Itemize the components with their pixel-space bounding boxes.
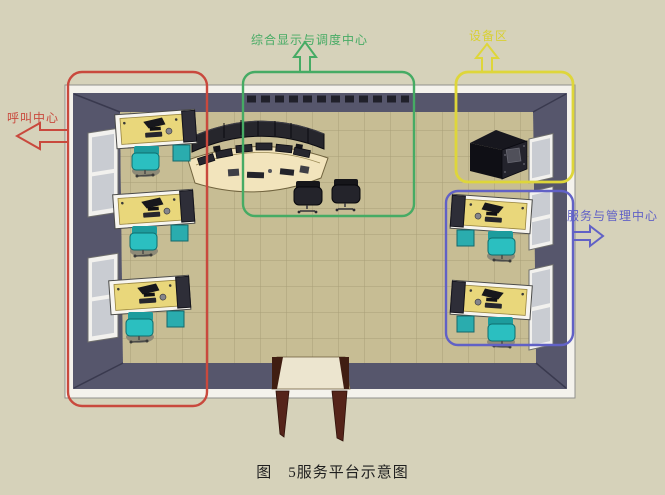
zone-label-service-management: 服务与管理中心 xyxy=(567,210,658,223)
arrow-right-icon xyxy=(573,226,603,246)
figure-canvas: 呼叫中心 综合显示与调度中心 设备区 服务与管理中心 图 5服务平台示意图 xyxy=(0,0,665,495)
zone-label-display-dispatch: 综合显示与调度中心 xyxy=(251,34,368,47)
call-center-workstations xyxy=(109,109,197,343)
arrow-left-icon xyxy=(17,123,68,149)
zone-label-call-center: 呼叫中心 xyxy=(7,112,59,125)
room-illustration xyxy=(0,0,665,495)
door xyxy=(272,357,350,441)
right-windows xyxy=(529,133,553,350)
zone-label-equipment: 设备区 xyxy=(469,30,508,43)
arrow-up-yellow-icon xyxy=(476,44,498,72)
figure-caption: 图 5服务平台示意图 xyxy=(0,461,665,482)
